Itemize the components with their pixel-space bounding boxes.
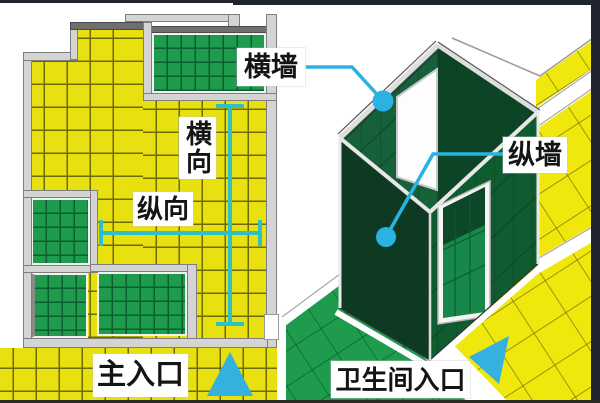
frame-right xyxy=(591,0,600,403)
longitudinal-wall-label: 纵墙 xyxy=(503,137,567,173)
main-entrance-arrow-icon xyxy=(207,352,253,396)
transverse-wall-label: 横墙 xyxy=(237,48,305,86)
main-entrance-label: 主入口 xyxy=(93,354,188,397)
frame-top-thick xyxy=(233,0,600,5)
transverse-wall-leader-line xyxy=(306,67,383,101)
transverse-direction-label: 横向 xyxy=(179,117,216,179)
longitudinal-direction-label: 纵向 xyxy=(133,192,193,226)
bathroom-entrance-label: 卫生间入口 xyxy=(331,361,470,398)
transverse-wall-marker xyxy=(373,91,394,112)
longitudinal-wall-marker xyxy=(376,227,396,247)
diagram-canvas: 横墙 纵墙 横向 纵向 主入口 卫生间入口 xyxy=(0,0,600,403)
